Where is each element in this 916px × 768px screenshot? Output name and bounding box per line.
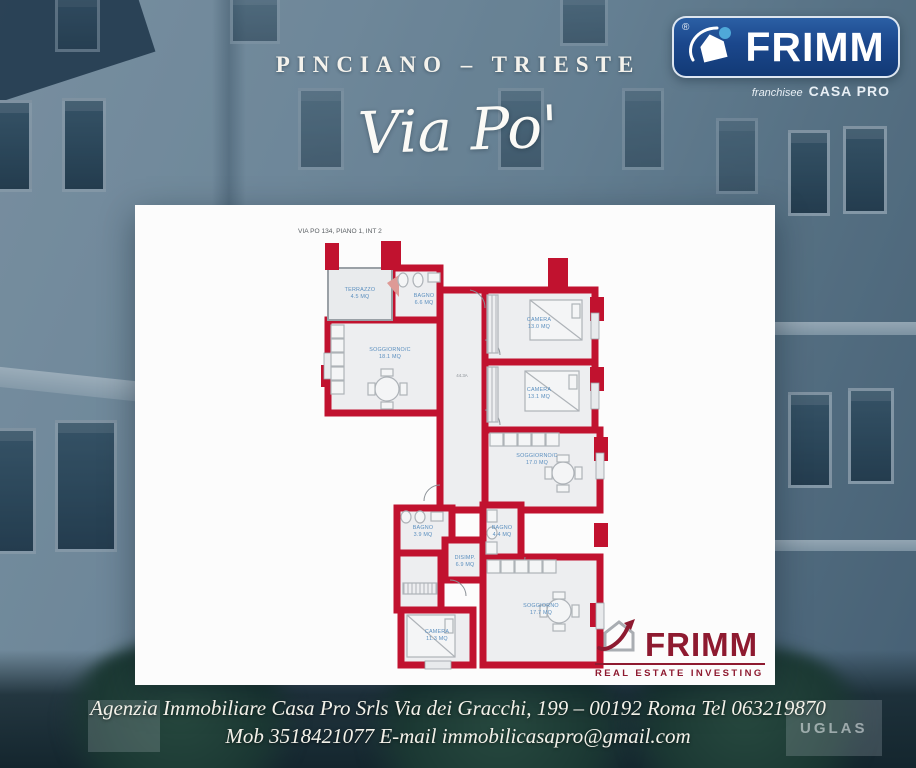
room-label-area: 6.9 MQ: [456, 562, 475, 568]
room-label-area: 4.4 MQ: [493, 532, 512, 538]
corridor-annotation: 44.3A: [456, 373, 468, 378]
room-label-area: 4.5 MQ: [351, 294, 370, 300]
wardrobe-icon: [487, 295, 498, 353]
room-label-name: CAMERA: [425, 629, 449, 635]
room-label-name: TERRAZZO: [345, 287, 376, 293]
room-label-name: DISIMP.: [455, 555, 476, 561]
flyer: UGLAS PINCIANO – TRIESTE Via Po' ® FRIMM…: [0, 0, 916, 768]
room-label-name: SOGGIORNO: [523, 603, 559, 609]
room-label-name: BAGNO: [492, 525, 512, 531]
room-label-name: BAGNO: [414, 293, 434, 299]
room-label-name: CAMERA: [527, 317, 551, 323]
room-label-area: 17.0 MQ: [526, 460, 548, 466]
contact-line-2: Mob 3518421077 E-mail immobilicasapro@gm…: [0, 722, 916, 750]
logo-rule: [595, 663, 765, 665]
floorplan-drawing: VIA PO 134, PIANO 1, INT 2: [135, 205, 775, 685]
room-label-name: SOGGIORNO/C: [369, 347, 410, 353]
floorplan-card: VIA PO 134, PIANO 1, INT 2: [135, 205, 775, 685]
room-label-area: 13.1 MQ: [528, 394, 550, 400]
room-label-name: BAGNO: [413, 525, 433, 531]
agency-contact: Agenzia Immobiliare Casa Pro Srls Via de…: [0, 694, 916, 750]
frimm-house-icon: [687, 22, 739, 73]
room-label-area: 3.9 MQ: [414, 532, 433, 538]
frimm-badge: ® FRIMM: [672, 16, 900, 78]
room-label-area: 13.0 MQ: [528, 324, 550, 330]
wardrobe-icon: [403, 583, 437, 594]
room-label-name: CAMERA: [527, 387, 551, 393]
frimm-badge-wordmark: FRIMM: [745, 24, 884, 71]
room-label-area: 6.6 MQ: [415, 300, 434, 306]
frimm-rei-logo: FRIMM REAL ESTATE INVESTING: [595, 615, 765, 679]
room-label-area: 17.7 MQ: [530, 610, 552, 616]
room-label-name: SOGGIORNO/C: [516, 453, 557, 459]
wardrobe-icon: [487, 367, 498, 422]
frimm-arrow-house-icon: [595, 615, 641, 660]
room-label-area: 18.1 MQ: [379, 354, 401, 360]
franchisee-label: franchisee: [752, 87, 803, 99]
plan-title: VIA PO 134, PIANO 1, INT 2: [298, 228, 382, 235]
frimm-rei-wordmark: FRIMM: [645, 630, 758, 660]
franchisee-line: franchiseeCASA PRO: [672, 83, 900, 101]
franchisee-name: CASA PRO: [809, 83, 890, 99]
contact-line-1: Agenzia Immobiliare Casa Pro Srls Via de…: [0, 694, 916, 722]
frimm-rei-tagline: REAL ESTATE INVESTING: [595, 668, 765, 679]
room-label-area: 11.3 MQ: [426, 636, 448, 642]
registered-mark: ®: [682, 22, 689, 33]
